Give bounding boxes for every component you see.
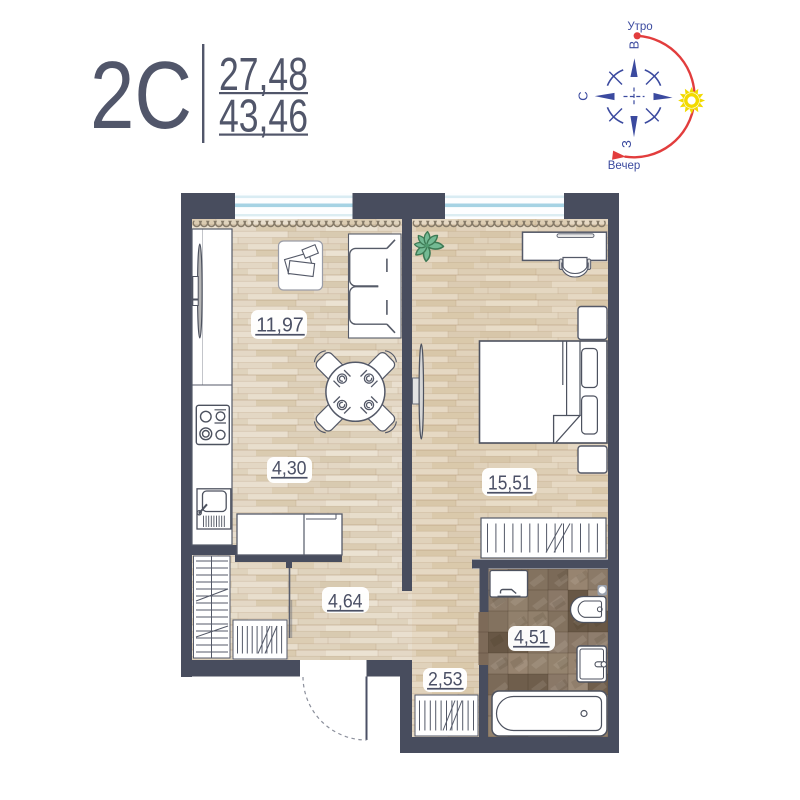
- svg-text:2С: 2С: [90, 42, 192, 149]
- svg-text:4,64: 4,64: [328, 592, 363, 613]
- svg-text:С: С: [576, 91, 591, 100]
- svg-text:В: В: [627, 41, 642, 50]
- svg-text:11,97: 11,97: [256, 315, 304, 337]
- svg-text:15,51: 15,51: [488, 473, 532, 495]
- svg-text:4,30: 4,30: [272, 459, 307, 480]
- svg-text:З: З: [619, 140, 634, 148]
- svg-text:4,51: 4,51: [514, 628, 549, 649]
- svg-text:Утро: Утро: [627, 21, 652, 33]
- svg-text:2,53: 2,53: [428, 670, 463, 691]
- svg-text:Вечер: Вечер: [608, 160, 640, 172]
